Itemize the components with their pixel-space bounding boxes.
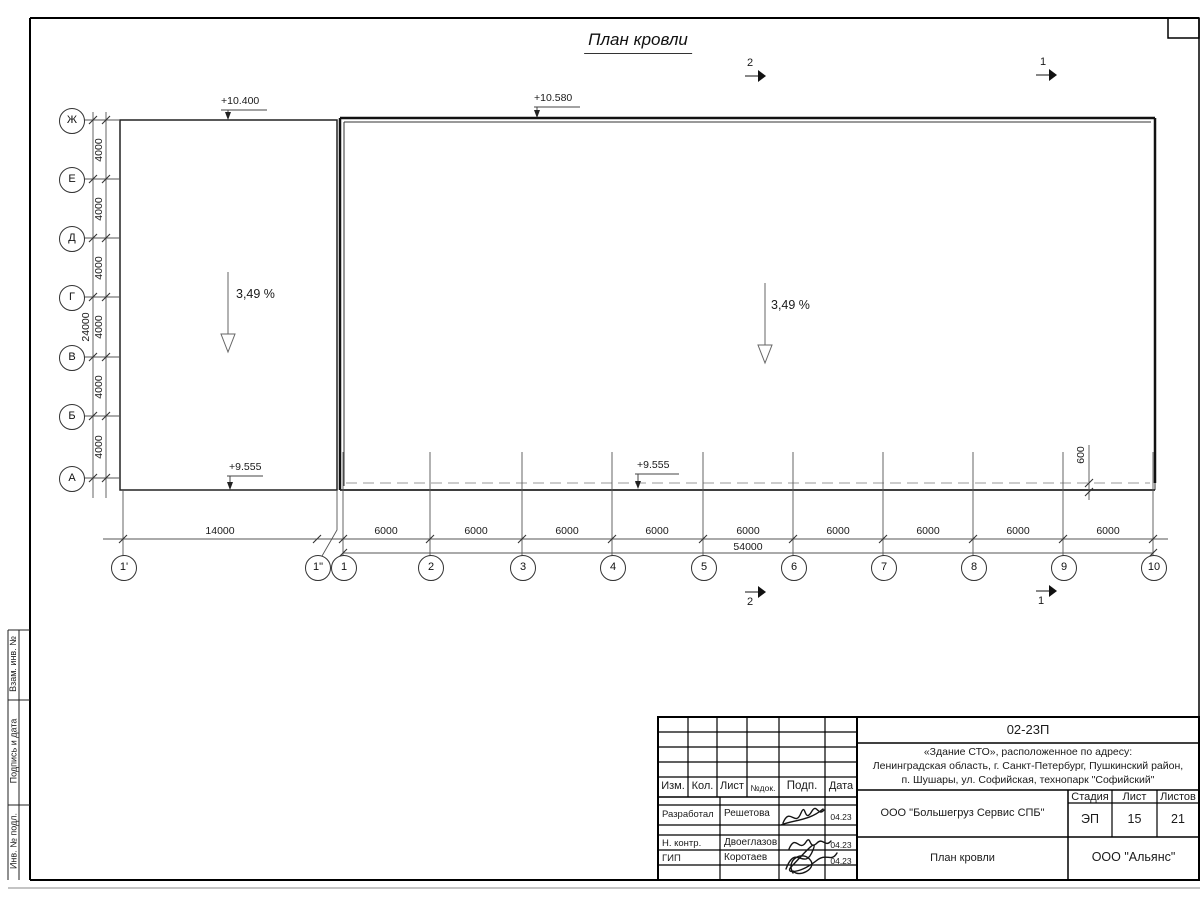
- grid-number-circle: 5: [691, 555, 717, 581]
- tb-company: ООО "Альянс": [1068, 850, 1199, 864]
- tb-date: 04.23: [825, 812, 857, 822]
- dim-label: 4000: [93, 309, 105, 345]
- grid-number-circle: 3: [510, 555, 536, 581]
- grid-number-circle: 2: [418, 555, 444, 581]
- tb-role: Н. контр.: [662, 838, 701, 849]
- dim-overhang-label: 600: [1075, 440, 1087, 470]
- elevation-leaders: [221, 107, 679, 490]
- tb-col-ndok: №док.: [747, 783, 779, 793]
- roof-slope-arrows: [221, 272, 772, 363]
- tb-address-line: «Здание СТО», расположенное по адресу:: [857, 745, 1199, 759]
- drawing-sheet: План кровли Ж Е Д Г В Б А 1' 1" 1 2 3 4 …: [0, 0, 1200, 900]
- grid-letter-circle: А: [59, 466, 85, 492]
- tb-sheet-value: 15: [1112, 812, 1157, 826]
- elevation-label: +9.555: [637, 459, 669, 471]
- tb-sheets-value: 21: [1157, 812, 1199, 826]
- section-mark-label: 2: [747, 57, 753, 69]
- tb-role: Разработал: [662, 809, 714, 820]
- dim-label: 14000: [200, 525, 240, 537]
- tb-col-list: Лист: [717, 780, 747, 792]
- grid-number-circle: 9: [1051, 555, 1077, 581]
- section-cut-flags: [745, 69, 1057, 598]
- tb-drawing-title: План кровли: [857, 852, 1068, 864]
- tb-doc-number: 02-23П: [857, 722, 1199, 737]
- tb-date: 04.23: [825, 840, 857, 850]
- tb-name: Решетова: [724, 808, 770, 819]
- tb-name: Двоеглазов: [724, 837, 777, 848]
- dim-label: 6000: [547, 525, 587, 537]
- dim-label: 6000: [366, 525, 406, 537]
- tb-name: Коротаев: [724, 852, 767, 863]
- dim-label: 4000: [93, 429, 105, 465]
- grid-letter-circle: Д: [59, 226, 85, 252]
- slope-label: 3,49 %: [771, 298, 810, 312]
- grid-number-circle: 1: [331, 555, 357, 581]
- grid-number-circle: 1': [111, 555, 137, 581]
- side-stamp-label: Инв. № подл.: [9, 804, 19, 879]
- grid-number-circle: 8: [961, 555, 987, 581]
- grid-number-circle: 10: [1141, 555, 1167, 581]
- dim-label: 6000: [998, 525, 1038, 537]
- grid-letter-circle: Ж: [59, 108, 85, 134]
- tb-sheets-label: Листов: [1157, 791, 1199, 803]
- section-mark-label: 1: [1040, 56, 1046, 68]
- grid-number-circle: 4: [600, 555, 626, 581]
- slope-label: 3,49 %: [236, 287, 275, 301]
- tb-col-data: Дата: [825, 780, 857, 792]
- grid-letter-circle: Е: [59, 167, 85, 193]
- tb-col-kol: Кол.: [688, 780, 717, 792]
- tb-stage-label: Стадия: [1068, 791, 1112, 803]
- dim-label: 6000: [456, 525, 496, 537]
- tb-client: ООО "Большегруз Сервис СПБ": [857, 807, 1068, 819]
- dim-total-label: 54000: [723, 541, 773, 553]
- dim-label: 4000: [93, 369, 105, 405]
- tb-stage-value: ЭП: [1068, 812, 1112, 826]
- dimension-lines: [93, 112, 1168, 553]
- tb-address-line: п. Шушары, ул. Софийская, технопарк "Соф…: [857, 773, 1199, 787]
- tb-col-izm: Изм.: [658, 780, 688, 792]
- tb-project-address: «Здание СТО», расположенное по адресу: Л…: [857, 745, 1199, 787]
- dim-total-label: 24000: [80, 305, 92, 349]
- tb-role: ГИП: [662, 853, 681, 864]
- side-stamp-label: Подпись и дата: [9, 699, 19, 804]
- elevation-label: +10.400: [221, 95, 259, 107]
- dim-label: 6000: [728, 525, 768, 537]
- main-roof-outline: [340, 118, 1155, 490]
- section-mark-label: 2: [747, 596, 753, 608]
- dim-label: 4000: [93, 191, 105, 227]
- grid-number-circle: 6: [781, 555, 807, 581]
- side-stamp-label: Взам. инв. №: [8, 629, 18, 699]
- tb-date: 04.23: [825, 856, 857, 866]
- grid-letter-circle: Б: [59, 404, 85, 430]
- dim-label: 6000: [908, 525, 948, 537]
- dim-label: 4000: [93, 250, 105, 286]
- dim-label: 6000: [637, 525, 677, 537]
- page-title: План кровли: [584, 30, 692, 54]
- elevation-label: +10.580: [534, 92, 572, 104]
- dim-label: 6000: [818, 525, 858, 537]
- tb-col-podp: Подп.: [779, 780, 825, 792]
- dim-label: 6000: [1088, 525, 1128, 537]
- corner-doc-box: [1168, 18, 1199, 38]
- elevation-label: +9.555: [229, 461, 261, 473]
- dim-label: 4000: [93, 132, 105, 168]
- section-mark-label: 1: [1038, 595, 1044, 607]
- tb-sheet-label: Лист: [1112, 791, 1157, 803]
- grid-number-circle: 1": [305, 555, 331, 581]
- grid-number-circle: 7: [871, 555, 897, 581]
- tb-address-line: Ленинградская область, г. Санкт-Петербур…: [857, 759, 1199, 773]
